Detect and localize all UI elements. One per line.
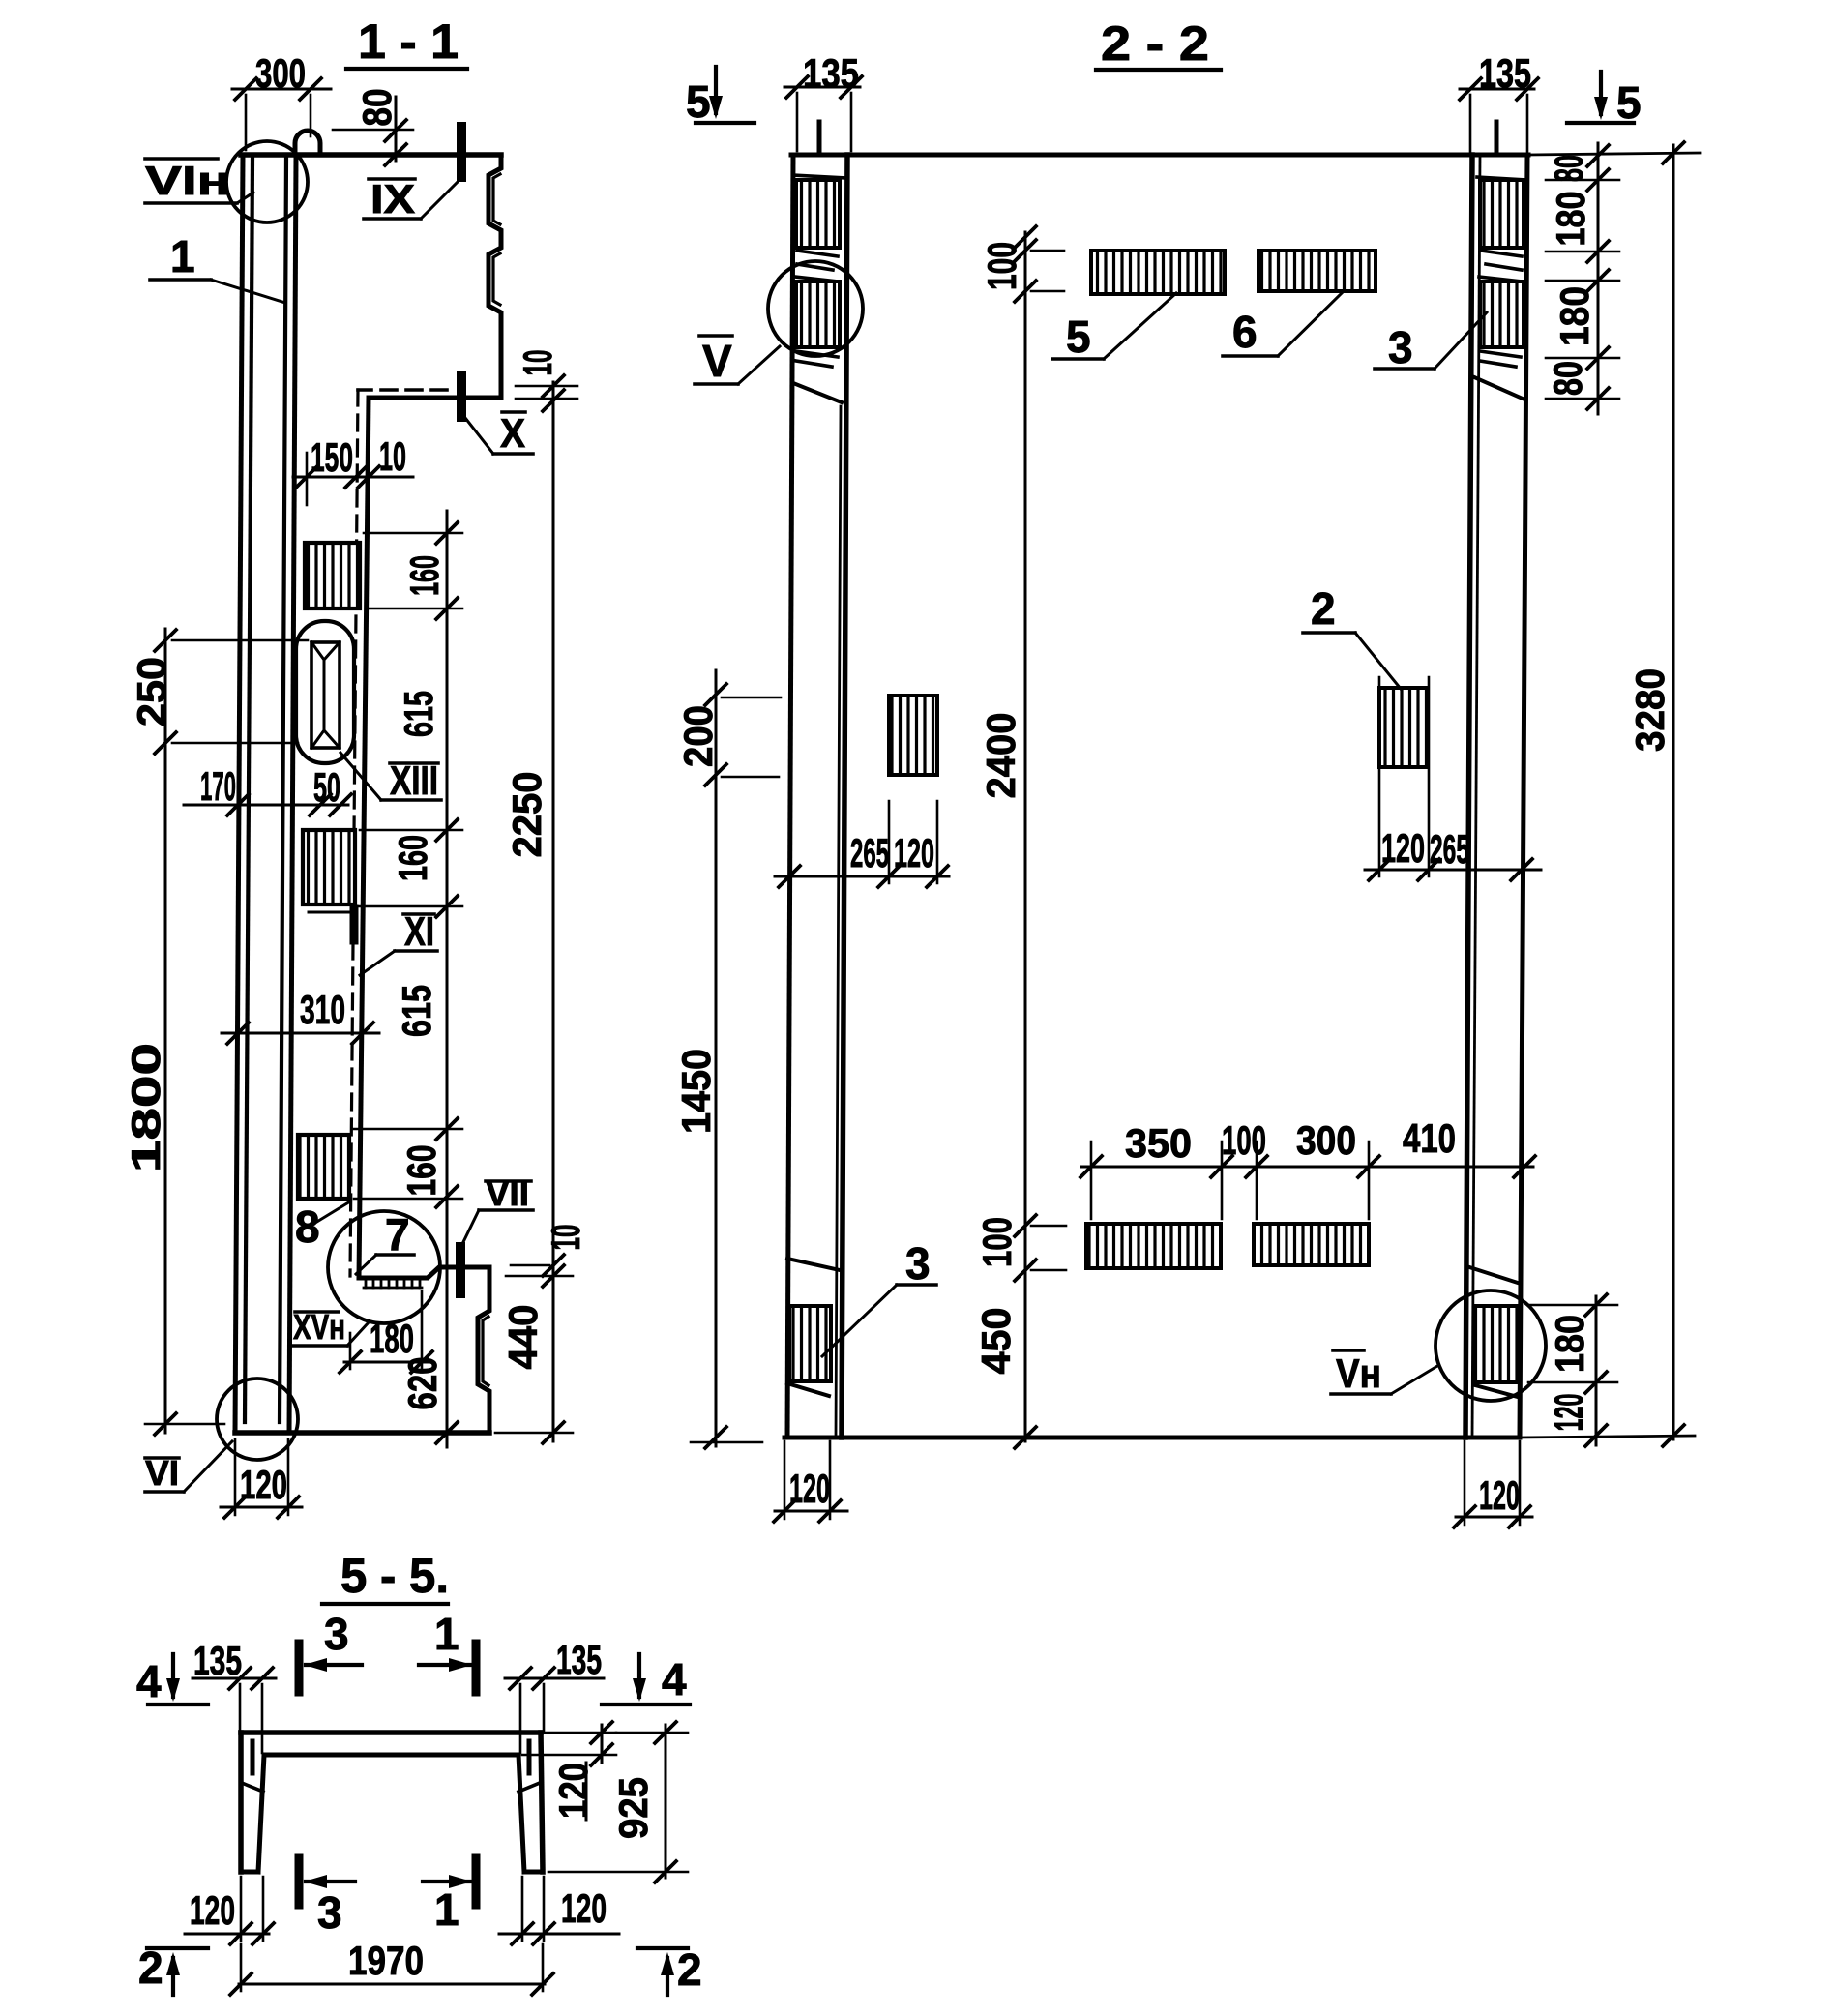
svg-text:5 - 5.: 5 - 5. (340, 1549, 449, 1603)
svg-text:80: 80 (1546, 155, 1591, 182)
svg-text:135: 135 (1479, 50, 1531, 96)
svg-text:100: 100 (1222, 1117, 1266, 1163)
svg-text:IX: IX (370, 176, 415, 222)
svg-text:1: 1 (434, 1609, 459, 1659)
svg-text:615: 615 (394, 985, 439, 1037)
svg-text:120: 120 (894, 830, 934, 875)
svg-text:X: X (500, 410, 525, 456)
svg-text:80: 80 (1545, 361, 1590, 396)
svg-text:10: 10 (543, 1225, 588, 1251)
svg-text:180: 180 (370, 1316, 414, 1361)
svg-text:3: 3 (1388, 322, 1413, 372)
svg-text:450: 450 (973, 1308, 1019, 1375)
svg-text:5: 5 (1616, 77, 1642, 128)
svg-text:Vн: Vн (1336, 1350, 1381, 1396)
svg-text:180: 180 (1548, 192, 1593, 247)
svg-text:2: 2 (138, 1942, 163, 1993)
svg-text:160: 160 (399, 1145, 444, 1197)
svg-text:135: 135 (193, 1638, 242, 1683)
svg-text:925: 925 (610, 1777, 656, 1839)
svg-text:4: 4 (662, 1654, 687, 1705)
svg-text:440: 440 (500, 1305, 546, 1370)
svg-text:2250: 2250 (504, 772, 549, 858)
svg-text:80: 80 (354, 89, 400, 127)
svg-text:350: 350 (1125, 1120, 1192, 1166)
svg-text:XIII: XIII (390, 757, 438, 803)
svg-text:5: 5 (1066, 311, 1091, 362)
svg-text:1450: 1450 (673, 1049, 719, 1134)
svg-text:250: 250 (129, 657, 174, 726)
svg-text:XI: XI (404, 908, 434, 954)
svg-text:6: 6 (1232, 307, 1258, 357)
svg-text:10: 10 (379, 433, 406, 479)
svg-text:615: 615 (396, 691, 441, 737)
svg-text:1: 1 (170, 231, 195, 282)
svg-text:2 - 2: 2 - 2 (1101, 16, 1209, 71)
svg-text:2400: 2400 (978, 713, 1023, 799)
svg-text:1800: 1800 (123, 1043, 168, 1172)
svg-text:180: 180 (1552, 286, 1597, 346)
svg-text:265: 265 (1430, 826, 1469, 872)
svg-text:135: 135 (803, 50, 859, 96)
svg-text:200: 200 (675, 705, 721, 767)
svg-text:265: 265 (850, 830, 889, 875)
svg-text:2: 2 (677, 1944, 702, 1995)
svg-text:120: 120 (1381, 825, 1425, 871)
svg-text:V: V (702, 336, 732, 386)
svg-text:7: 7 (385, 1209, 410, 1260)
svg-text:100: 100 (979, 242, 1024, 290)
svg-text:8: 8 (295, 1201, 320, 1252)
svg-text:310: 310 (300, 987, 345, 1032)
svg-text:2: 2 (1311, 583, 1336, 634)
svg-text:120: 120 (240, 1462, 287, 1507)
svg-text:410: 410 (1403, 1115, 1456, 1161)
svg-text:VII: VII (486, 1173, 529, 1213)
svg-text:3: 3 (905, 1238, 931, 1289)
svg-text:5: 5 (686, 76, 711, 127)
svg-text:160: 160 (390, 835, 435, 881)
svg-text:VI: VI (145, 1453, 179, 1493)
svg-text:50: 50 (313, 764, 340, 810)
svg-text:170: 170 (200, 763, 236, 809)
svg-text:120: 120 (561, 1885, 607, 1931)
svg-text:3: 3 (324, 1609, 349, 1659)
svg-text:3280: 3280 (1627, 668, 1672, 752)
svg-text:120: 120 (550, 1763, 596, 1819)
svg-text:1: 1 (434, 1884, 459, 1935)
svg-text:120: 120 (1479, 1472, 1520, 1518)
svg-text:300: 300 (1296, 1117, 1356, 1163)
svg-text:1 - 1: 1 - 1 (358, 15, 459, 69)
svg-text:150: 150 (311, 434, 353, 480)
svg-text:4: 4 (136, 1656, 162, 1706)
svg-text:10: 10 (515, 350, 560, 376)
svg-text:1970: 1970 (348, 1938, 424, 1983)
svg-text:120: 120 (190, 1887, 235, 1933)
svg-text:180: 180 (1547, 1315, 1592, 1373)
svg-text:VIн: VIн (145, 158, 230, 203)
svg-text:120: 120 (789, 1466, 830, 1511)
svg-text:120: 120 (1546, 1394, 1591, 1432)
svg-text:135: 135 (556, 1637, 602, 1682)
svg-text:300: 300 (255, 50, 306, 96)
svg-text:100: 100 (974, 1217, 1020, 1267)
svg-text:160: 160 (401, 555, 447, 596)
svg-text:XVн: XVн (293, 1307, 345, 1347)
svg-text:3: 3 (317, 1887, 342, 1938)
